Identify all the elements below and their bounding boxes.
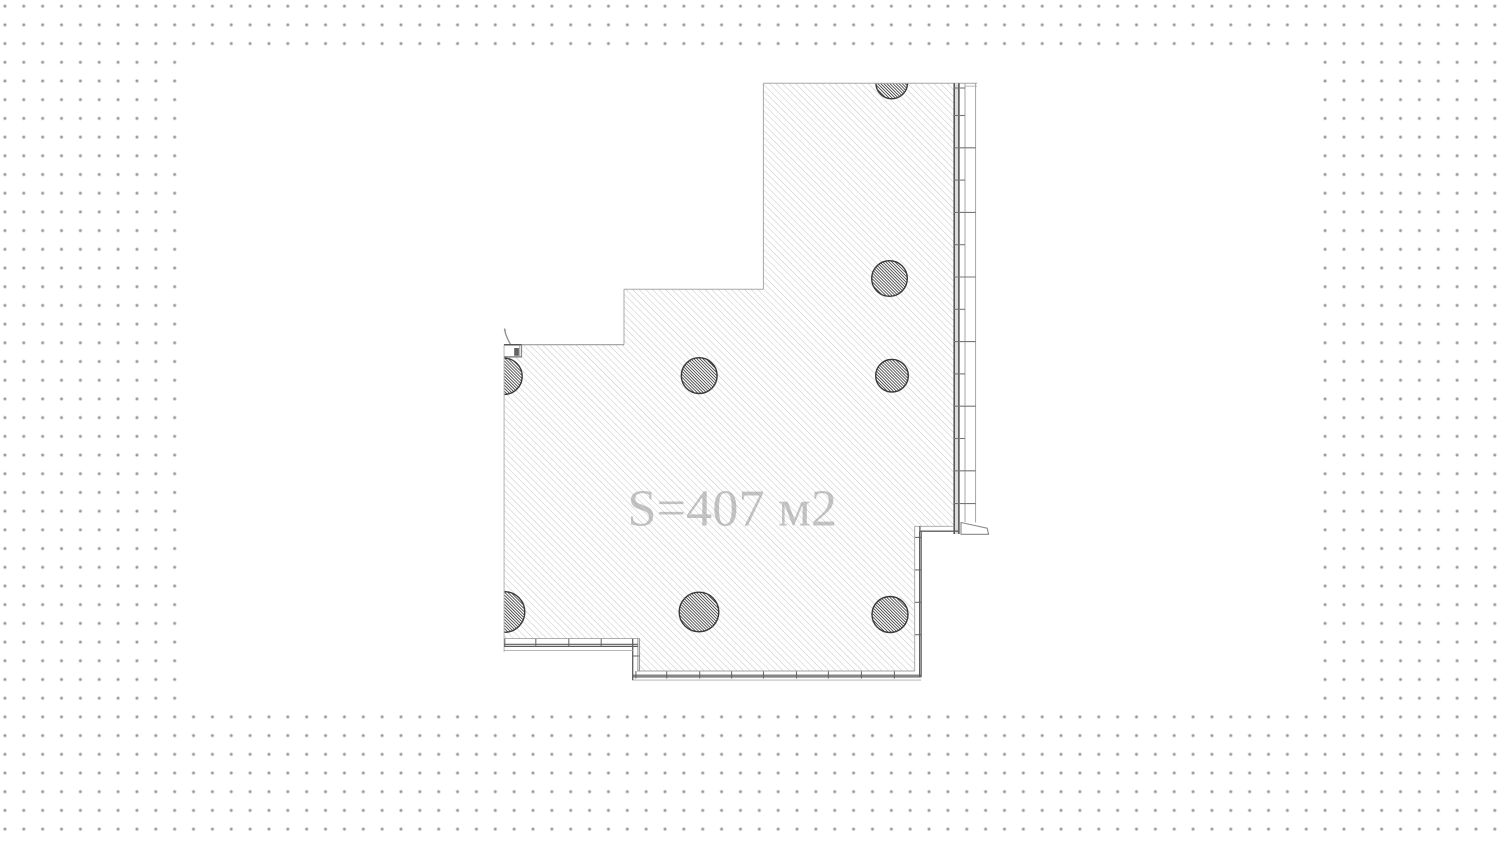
svg-text:S=407 м2: S=407 м2 [628, 481, 838, 538]
